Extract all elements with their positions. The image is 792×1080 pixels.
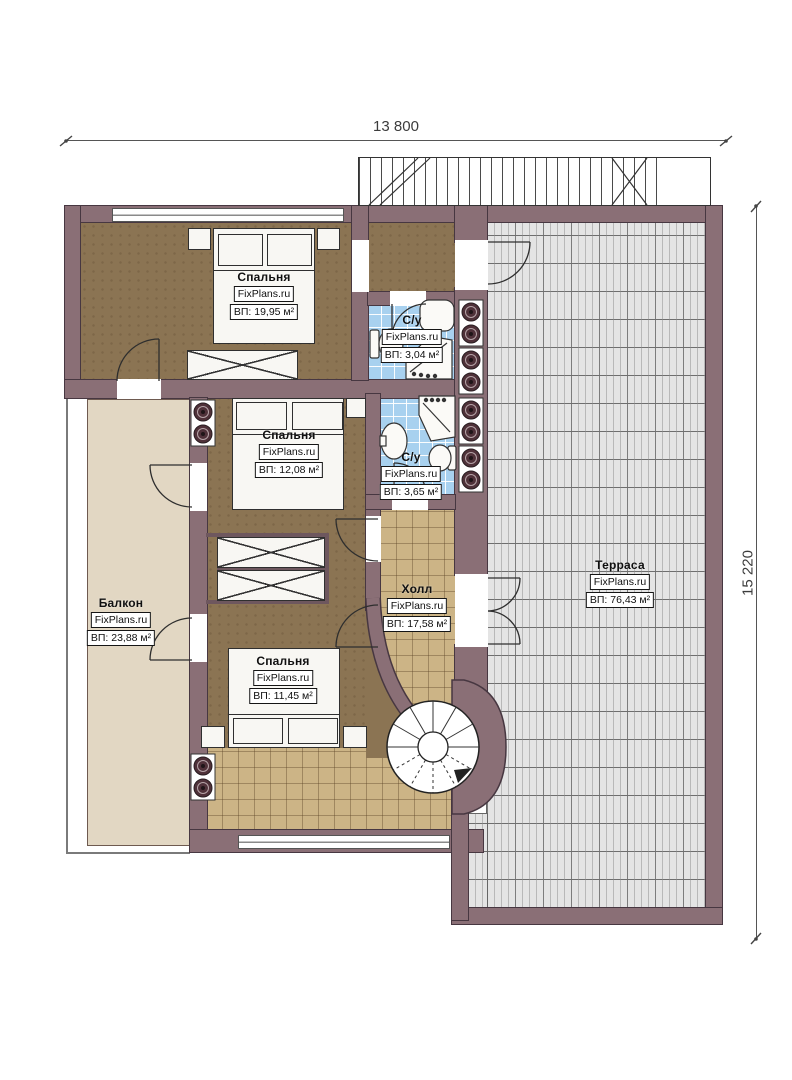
area-box: ВП: 19,95 м² <box>230 304 298 320</box>
pergola-slats <box>359 158 659 205</box>
area-box: ВП: 11,45 м² <box>249 688 317 704</box>
room-name: Терраса <box>586 558 654 572</box>
brand-box: FixPlans.ru <box>253 670 314 686</box>
area-box: ВП: 76,43 м² <box>586 592 654 608</box>
nightstand <box>346 398 366 418</box>
area-box: ВП: 12,08 м² <box>255 462 323 478</box>
brand-box: FixPlans.ru <box>590 574 651 590</box>
pergola <box>358 157 711 206</box>
nightstand <box>188 228 211 250</box>
pillow <box>236 402 287 430</box>
door-opening-bathroom-top <box>390 291 426 306</box>
wardrobe-bottom <box>217 570 325 601</box>
pillow <box>288 718 338 744</box>
room-label-bedroom-top: Спальня FixPlans.ru ВП: 19,95 м² <box>230 270 298 320</box>
door-opening-hall-2 <box>366 602 381 649</box>
room-label-balcony: Балкон FixPlans.ru ВП: 23,88 м² <box>87 596 155 646</box>
terrace-parapet-right <box>706 206 722 924</box>
area-box: ВП: 23,88 м² <box>87 630 155 646</box>
room-label-bedroom-middle: Спальня FixPlans.ru ВП: 12,08 м² <box>255 428 323 478</box>
door-opening-terrace-french <box>455 574 488 647</box>
nightstand <box>317 228 340 250</box>
room-label-hall: Холл FixPlans.ru ВП: 17,58 м² <box>383 582 451 632</box>
nook-wall-right <box>325 533 329 604</box>
room-name: С/у <box>380 450 442 464</box>
door-opening-balcony-1 <box>190 463 207 511</box>
brand-box: FixPlans.ru <box>382 329 443 345</box>
area-box: ВП: 17,58 м² <box>383 616 451 632</box>
dimension-height: 15 220 <box>740 550 757 596</box>
room-label-bedroom-bottom: Спальня FixPlans.ru ВП: 11,45 м² <box>249 654 317 704</box>
room-name: Спальня <box>230 270 298 284</box>
pillow <box>267 234 312 266</box>
hall-floor-lower <box>206 748 455 832</box>
door-opening-corridor <box>352 240 369 292</box>
terrace-parapet-left <box>452 790 468 920</box>
stair-direction-arrow <box>454 768 472 783</box>
window-top <box>112 208 344 222</box>
door-opening-terrace-top <box>455 240 488 290</box>
room-name: Балкон <box>87 596 155 610</box>
brand-box: FixPlans.ru <box>381 466 442 482</box>
wall-terrace-seg2 <box>455 288 487 575</box>
window-bottom <box>238 835 450 849</box>
area-box: ВП: 3,04 м² <box>381 347 443 363</box>
terrace-floor-strip <box>468 814 487 908</box>
terrace-parapet-bottom <box>452 908 722 924</box>
pillow <box>292 402 343 430</box>
blanket-line <box>229 714 339 715</box>
door-opening-bedroom-top <box>117 379 161 399</box>
brand-box: FixPlans.ru <box>387 598 448 614</box>
pillow <box>218 234 263 266</box>
balcony-rail-bottom <box>66 852 190 854</box>
balcony-rail-left <box>66 396 68 854</box>
brand-box: FixPlans.ru <box>234 286 295 302</box>
door-opening-hall-1 <box>366 516 381 562</box>
wall-bedroom-top-right <box>352 206 368 380</box>
door-opening-balcony-2 <box>190 614 207 662</box>
room-label-terrace: Терраса FixPlans.ru ВП: 76,43 м² <box>586 558 654 608</box>
nightstand <box>201 726 225 748</box>
room-name: Холл <box>383 582 451 596</box>
room-name: С/у <box>381 313 443 327</box>
brand-box: FixPlans.ru <box>259 444 320 460</box>
floor-plan: Спальня FixPlans.ru ВП: 19,95 м² С/у Fix… <box>0 0 792 1080</box>
corridor-floor <box>368 222 455 292</box>
wall-terrace-seg1 <box>455 206 487 242</box>
room-label-bathroom-middle: С/у FixPlans.ru ВП: 3,65 м² <box>380 450 442 500</box>
area-box: ВП: 3,65 м² <box>380 484 442 500</box>
room-name: Спальня <box>255 428 323 442</box>
wall-terrace-seg3 <box>455 645 487 695</box>
nightstand <box>343 726 367 748</box>
room-name: Спальня <box>249 654 317 668</box>
wall-left <box>65 206 80 398</box>
pillow <box>233 718 283 744</box>
brand-box: FixPlans.ru <box>91 612 152 628</box>
dimension-line-top <box>66 140 726 141</box>
wardrobe-middle <box>217 537 325 568</box>
dimension-width: 13 800 <box>373 118 419 135</box>
room-label-bathroom-top: С/у FixPlans.ru ВП: 3,04 м² <box>381 313 443 363</box>
wardrobe-top <box>187 350 298 380</box>
